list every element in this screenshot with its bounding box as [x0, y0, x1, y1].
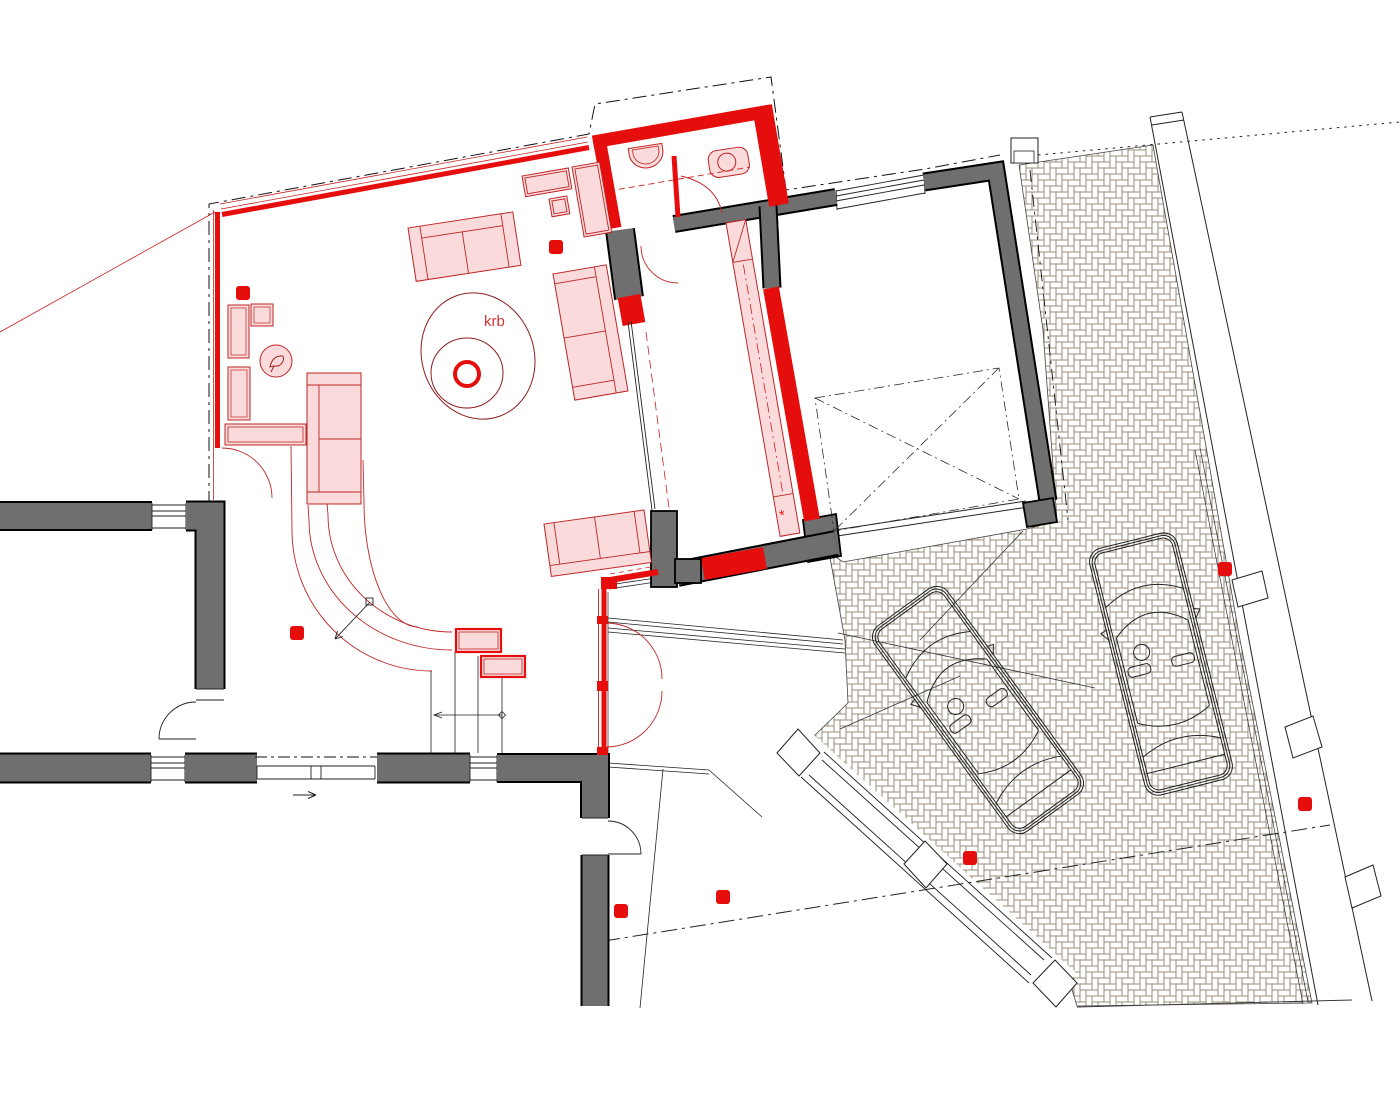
svg-text:krb: krb — [484, 313, 505, 330]
